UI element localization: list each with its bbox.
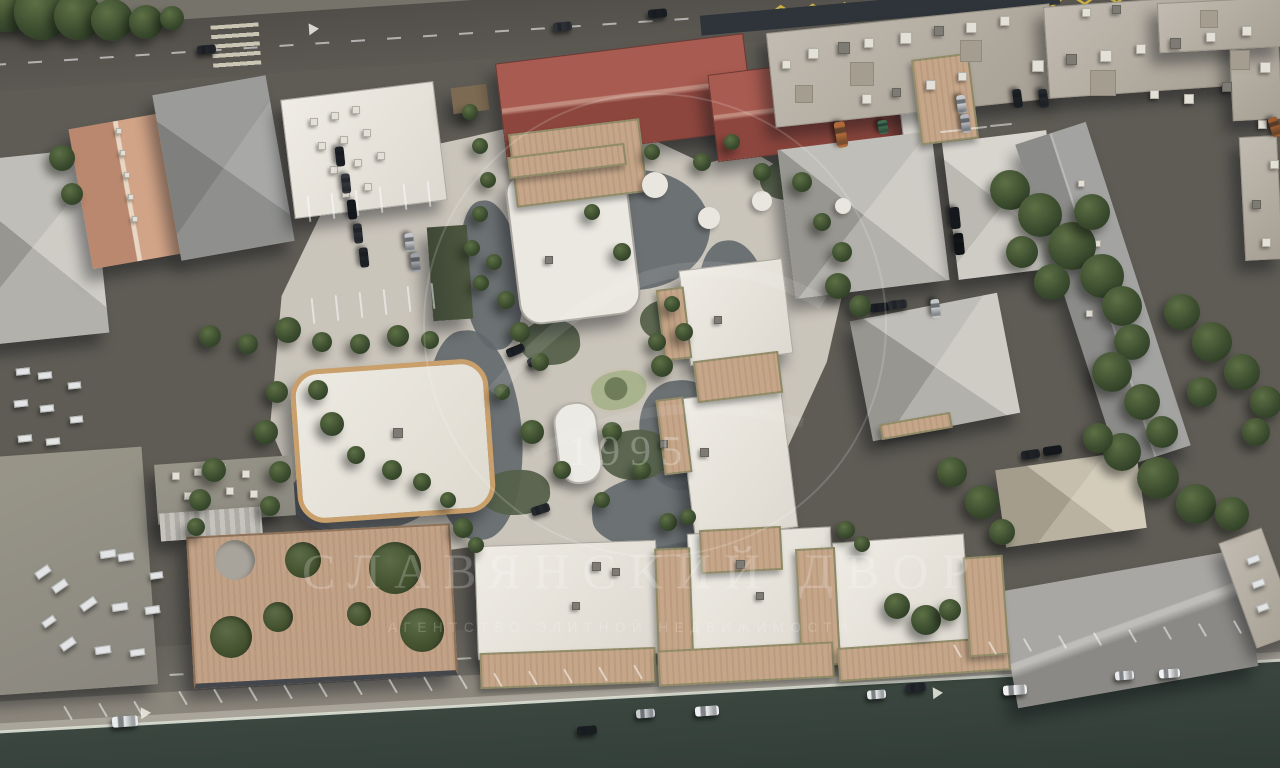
- container-box: [41, 615, 56, 629]
- tree: [269, 461, 291, 483]
- rooftop-unit: [250, 490, 258, 498]
- tree: [129, 5, 163, 39]
- tree: [421, 331, 439, 349]
- rooftop-unit: [660, 440, 668, 448]
- tree: [651, 355, 673, 377]
- roof-garden-circle: [369, 542, 421, 594]
- tree: [91, 0, 133, 41]
- tree: [1215, 497, 1249, 531]
- parking-line: [1023, 638, 1032, 652]
- roof-terrace: [879, 412, 953, 440]
- tree: [440, 492, 456, 508]
- tree: [1006, 236, 1038, 268]
- tree: [837, 521, 855, 539]
- rooftop-unit: [714, 316, 722, 324]
- rooftop-unit: [960, 40, 982, 62]
- rooftop-unit: [226, 487, 234, 495]
- car: [505, 343, 526, 358]
- car: [867, 689, 887, 699]
- rooftop-unit: [612, 568, 620, 576]
- roof-terrace: [963, 555, 1010, 658]
- roof-garden-circle: [263, 602, 293, 632]
- roof-garden-circle: [347, 602, 371, 626]
- rooftop-unit: [700, 448, 709, 457]
- car: [695, 705, 720, 717]
- container-box: [40, 404, 55, 412]
- car: [577, 725, 598, 735]
- car: [334, 146, 345, 167]
- tree: [1074, 194, 1110, 230]
- roof-garden-circle: [210, 616, 252, 658]
- parking-line: [379, 187, 384, 213]
- tree: [648, 333, 666, 351]
- container-box: [34, 564, 52, 580]
- car: [1115, 670, 1135, 680]
- container-box: [18, 434, 33, 442]
- parking-line: [133, 701, 143, 716]
- tree: [413, 473, 431, 491]
- tree: [308, 380, 328, 400]
- rooftop-unit: [124, 172, 130, 178]
- car: [949, 207, 961, 230]
- tree: [49, 145, 75, 171]
- car: [877, 119, 889, 135]
- car: [358, 247, 369, 268]
- rooftop-unit: [1252, 200, 1261, 209]
- rooftop-unit: [1090, 70, 1116, 96]
- car: [1042, 445, 1062, 457]
- rooftop-unit: [1000, 16, 1010, 26]
- tree: [659, 513, 677, 531]
- rooftop-unit: [966, 22, 977, 33]
- tree: [350, 334, 370, 354]
- tree: [464, 240, 480, 256]
- car: [112, 715, 139, 728]
- car: [1012, 88, 1024, 108]
- rooftop-unit: [808, 48, 819, 59]
- rooftop-unit: [1262, 238, 1271, 247]
- tree: [160, 6, 184, 30]
- tree: [1250, 386, 1280, 418]
- tree: [266, 381, 288, 403]
- tree: [531, 353, 549, 371]
- tree: [832, 242, 852, 262]
- tree: [254, 420, 278, 444]
- tree: [1124, 384, 1160, 420]
- parking-line: [990, 123, 1012, 127]
- rooftop-unit: [1150, 90, 1159, 99]
- container-box: [46, 437, 61, 445]
- roof-garden-circle: [285, 542, 321, 578]
- car: [553, 21, 573, 32]
- parking-line: [383, 289, 388, 315]
- tree: [753, 163, 771, 181]
- parking-line: [307, 196, 312, 222]
- parking-line: [388, 679, 398, 694]
- parking-line: [283, 685, 293, 700]
- tree: [965, 485, 999, 519]
- rooftop-unit: [331, 112, 339, 120]
- container-box: [1251, 578, 1266, 589]
- tree: [849, 295, 871, 317]
- plaza-circle: [835, 198, 851, 214]
- container-box: [14, 399, 29, 407]
- tree: [494, 384, 510, 400]
- tree: [813, 213, 831, 231]
- rooftop-unit: [318, 142, 326, 150]
- container-box: [118, 552, 135, 562]
- parking-line: [318, 683, 328, 698]
- tree: [854, 536, 870, 552]
- tree: [510, 322, 530, 342]
- rooftop-unit: [782, 60, 791, 69]
- container-box: [95, 645, 112, 655]
- rooftop-unit: [1260, 62, 1271, 73]
- container-box: [16, 367, 31, 375]
- rooftop-unit: [572, 602, 580, 610]
- container-box: [79, 596, 98, 612]
- car: [352, 223, 363, 244]
- rooftop-unit: [1078, 180, 1085, 187]
- rooftop-unit: [1206, 32, 1216, 42]
- rooftop-unit: [1086, 310, 1093, 317]
- tree: [602, 422, 622, 442]
- tree: [584, 204, 600, 220]
- rooftop-unit: [194, 468, 202, 476]
- rooftop-unit: [1100, 50, 1112, 62]
- tree: [1224, 354, 1260, 390]
- parking-line: [359, 292, 364, 318]
- parking-line: [1163, 626, 1172, 640]
- parking-line: [1198, 623, 1207, 637]
- tree: [312, 332, 332, 352]
- rooftop-unit: [756, 592, 764, 600]
- tree: [238, 334, 258, 354]
- parking-line: [427, 181, 432, 207]
- rooftop-unit: [958, 72, 967, 81]
- plaza-circle: [752, 191, 772, 211]
- rooftop-unit: [864, 38, 874, 48]
- parking-line: [403, 184, 408, 210]
- parking-line: [248, 687, 258, 702]
- tree: [989, 519, 1015, 545]
- tree: [939, 599, 961, 621]
- tree: [792, 172, 812, 192]
- rooftop-unit: [1258, 120, 1267, 129]
- roof-terrace: [655, 397, 692, 476]
- rooftop-unit: [926, 80, 936, 90]
- rooftop-unit: [377, 152, 385, 160]
- container-box: [130, 648, 146, 657]
- roof-terrace: [657, 641, 835, 686]
- tree: [486, 254, 502, 270]
- tree: [1092, 352, 1132, 392]
- car: [1020, 449, 1040, 461]
- car: [1267, 116, 1280, 138]
- roof-concrete-circle: [215, 540, 255, 580]
- plaza-circle: [642, 172, 668, 198]
- roof-terrace: [479, 647, 656, 689]
- car: [906, 682, 927, 692]
- car: [833, 121, 848, 149]
- rooftop-unit: [1270, 160, 1279, 169]
- rooftop-unit: [116, 128, 122, 134]
- roof-terrace: [654, 547, 694, 654]
- car: [410, 253, 421, 273]
- car: [1038, 88, 1050, 108]
- tree: [1187, 377, 1217, 407]
- tree: [1164, 294, 1200, 330]
- rooftop-unit: [132, 216, 138, 222]
- rooftop-unit: [934, 26, 944, 36]
- tree: [1176, 484, 1216, 524]
- tree: [187, 518, 205, 536]
- tree: [1137, 457, 1179, 499]
- tree: [911, 605, 941, 635]
- tree: [202, 458, 226, 482]
- parking-line: [1093, 632, 1102, 646]
- tree: [260, 496, 280, 516]
- tree: [497, 291, 515, 309]
- tree: [693, 153, 711, 171]
- parking-line: [311, 298, 316, 324]
- parking-line: [1058, 635, 1067, 649]
- car: [930, 299, 941, 319]
- rooftop-unit: [120, 150, 126, 156]
- tree: [347, 446, 365, 464]
- car: [1003, 684, 1028, 696]
- tree: [675, 323, 693, 341]
- rooftop-unit: [850, 62, 874, 86]
- roof-garden-circle: [400, 608, 444, 652]
- parking-line: [98, 703, 108, 718]
- tree: [199, 325, 221, 347]
- tree: [937, 457, 967, 487]
- tree: [480, 172, 496, 188]
- container-box: [38, 371, 53, 379]
- parking-line: [1233, 620, 1242, 634]
- rooftop-unit: [545, 256, 553, 264]
- parking-line: [335, 295, 340, 321]
- parking-line: [458, 675, 468, 690]
- rooftop-unit: [592, 562, 601, 571]
- rooftop-unit: [1170, 38, 1181, 49]
- car: [636, 708, 656, 718]
- rooftop-unit: [364, 183, 372, 191]
- tree: [1083, 423, 1113, 453]
- tree: [472, 206, 488, 222]
- tree: [1102, 286, 1142, 326]
- tree: [320, 412, 344, 436]
- rooftop-unit: [1136, 44, 1146, 54]
- tree: [472, 138, 488, 154]
- tree: [1192, 322, 1232, 362]
- tree: [468, 537, 484, 553]
- container-box: [70, 415, 84, 423]
- tree: [189, 489, 211, 511]
- container-box: [112, 602, 129, 612]
- rooftop-unit: [1032, 60, 1044, 72]
- car: [648, 8, 668, 19]
- tree: [1242, 418, 1270, 446]
- car: [404, 233, 415, 253]
- rooftop-unit: [242, 470, 250, 478]
- rooftop-unit: [340, 136, 348, 144]
- rooftop-unit: [1222, 82, 1232, 92]
- container-box: [100, 549, 117, 559]
- parking-line: [178, 691, 188, 706]
- container-box: [1246, 554, 1261, 565]
- car: [953, 233, 965, 256]
- tree: [473, 275, 489, 291]
- plaza-circle: [698, 207, 720, 229]
- car: [346, 199, 357, 220]
- rooftop-unit: [862, 94, 872, 104]
- parking-line: [353, 681, 363, 696]
- parking-line: [213, 689, 223, 704]
- rooftop-unit: [736, 560, 745, 569]
- tree: [520, 420, 544, 444]
- tree: [680, 509, 696, 525]
- car: [340, 173, 351, 194]
- rooftop-unit: [900, 32, 912, 44]
- container-box: [51, 578, 69, 594]
- rooftop-unit: [1200, 10, 1218, 28]
- tree: [594, 492, 610, 508]
- scene-items: [0, 0, 1280, 768]
- roof-terrace: [693, 351, 783, 403]
- rooftop-unit: [1066, 54, 1077, 65]
- tree: [1146, 416, 1178, 448]
- tree: [613, 243, 631, 261]
- tree: [724, 134, 740, 150]
- tree: [884, 593, 910, 619]
- parking-line: [407, 286, 412, 312]
- rooftop-unit: [354, 159, 362, 167]
- tree: [664, 296, 680, 312]
- rooftop-unit: [172, 472, 180, 480]
- tree: [382, 460, 402, 480]
- parking-line: [1128, 629, 1137, 643]
- tree: [453, 518, 473, 538]
- rooftop-unit: [352, 106, 360, 114]
- rooftop-unit: [795, 85, 813, 103]
- parking-line: [331, 193, 336, 219]
- tree: [644, 144, 660, 160]
- container-box: [150, 571, 164, 580]
- parking-line: [63, 706, 73, 721]
- car: [870, 302, 890, 313]
- rooftop-unit: [310, 118, 318, 126]
- rooftop-unit: [892, 88, 901, 97]
- container-box: [145, 605, 161, 615]
- rooftop-unit: [363, 129, 371, 137]
- parking-line: [431, 283, 436, 309]
- rooftop-unit: [838, 42, 850, 54]
- rooftop-unit: [1242, 26, 1252, 36]
- rooftop-unit: [1230, 50, 1250, 70]
- car: [197, 44, 217, 55]
- tree: [275, 317, 301, 343]
- car: [888, 299, 908, 310]
- tree: [61, 183, 83, 205]
- rooftop-unit: [393, 428, 403, 438]
- aerial-render-canvas: 1995 СЛАВЯНСКИЙ ДВОР АГЕНТСТВО ЭЛИТНОЙ Н…: [0, 0, 1280, 768]
- car: [530, 502, 551, 516]
- tree: [462, 104, 478, 120]
- parking-line: [423, 677, 433, 692]
- tree: [1034, 264, 1070, 300]
- rooftop-unit: [128, 194, 134, 200]
- tree: [825, 273, 851, 299]
- rooftop-unit: [330, 166, 338, 174]
- rooftop-unit: [1082, 8, 1091, 17]
- tree: [633, 461, 651, 479]
- container-box: [68, 381, 82, 389]
- container-box: [59, 636, 77, 652]
- tree: [387, 325, 409, 347]
- rooftop-unit: [1184, 94, 1194, 104]
- tree: [553, 461, 571, 479]
- container-box: [1256, 602, 1270, 613]
- rooftop-unit: [1112, 5, 1121, 14]
- car: [1159, 668, 1181, 678]
